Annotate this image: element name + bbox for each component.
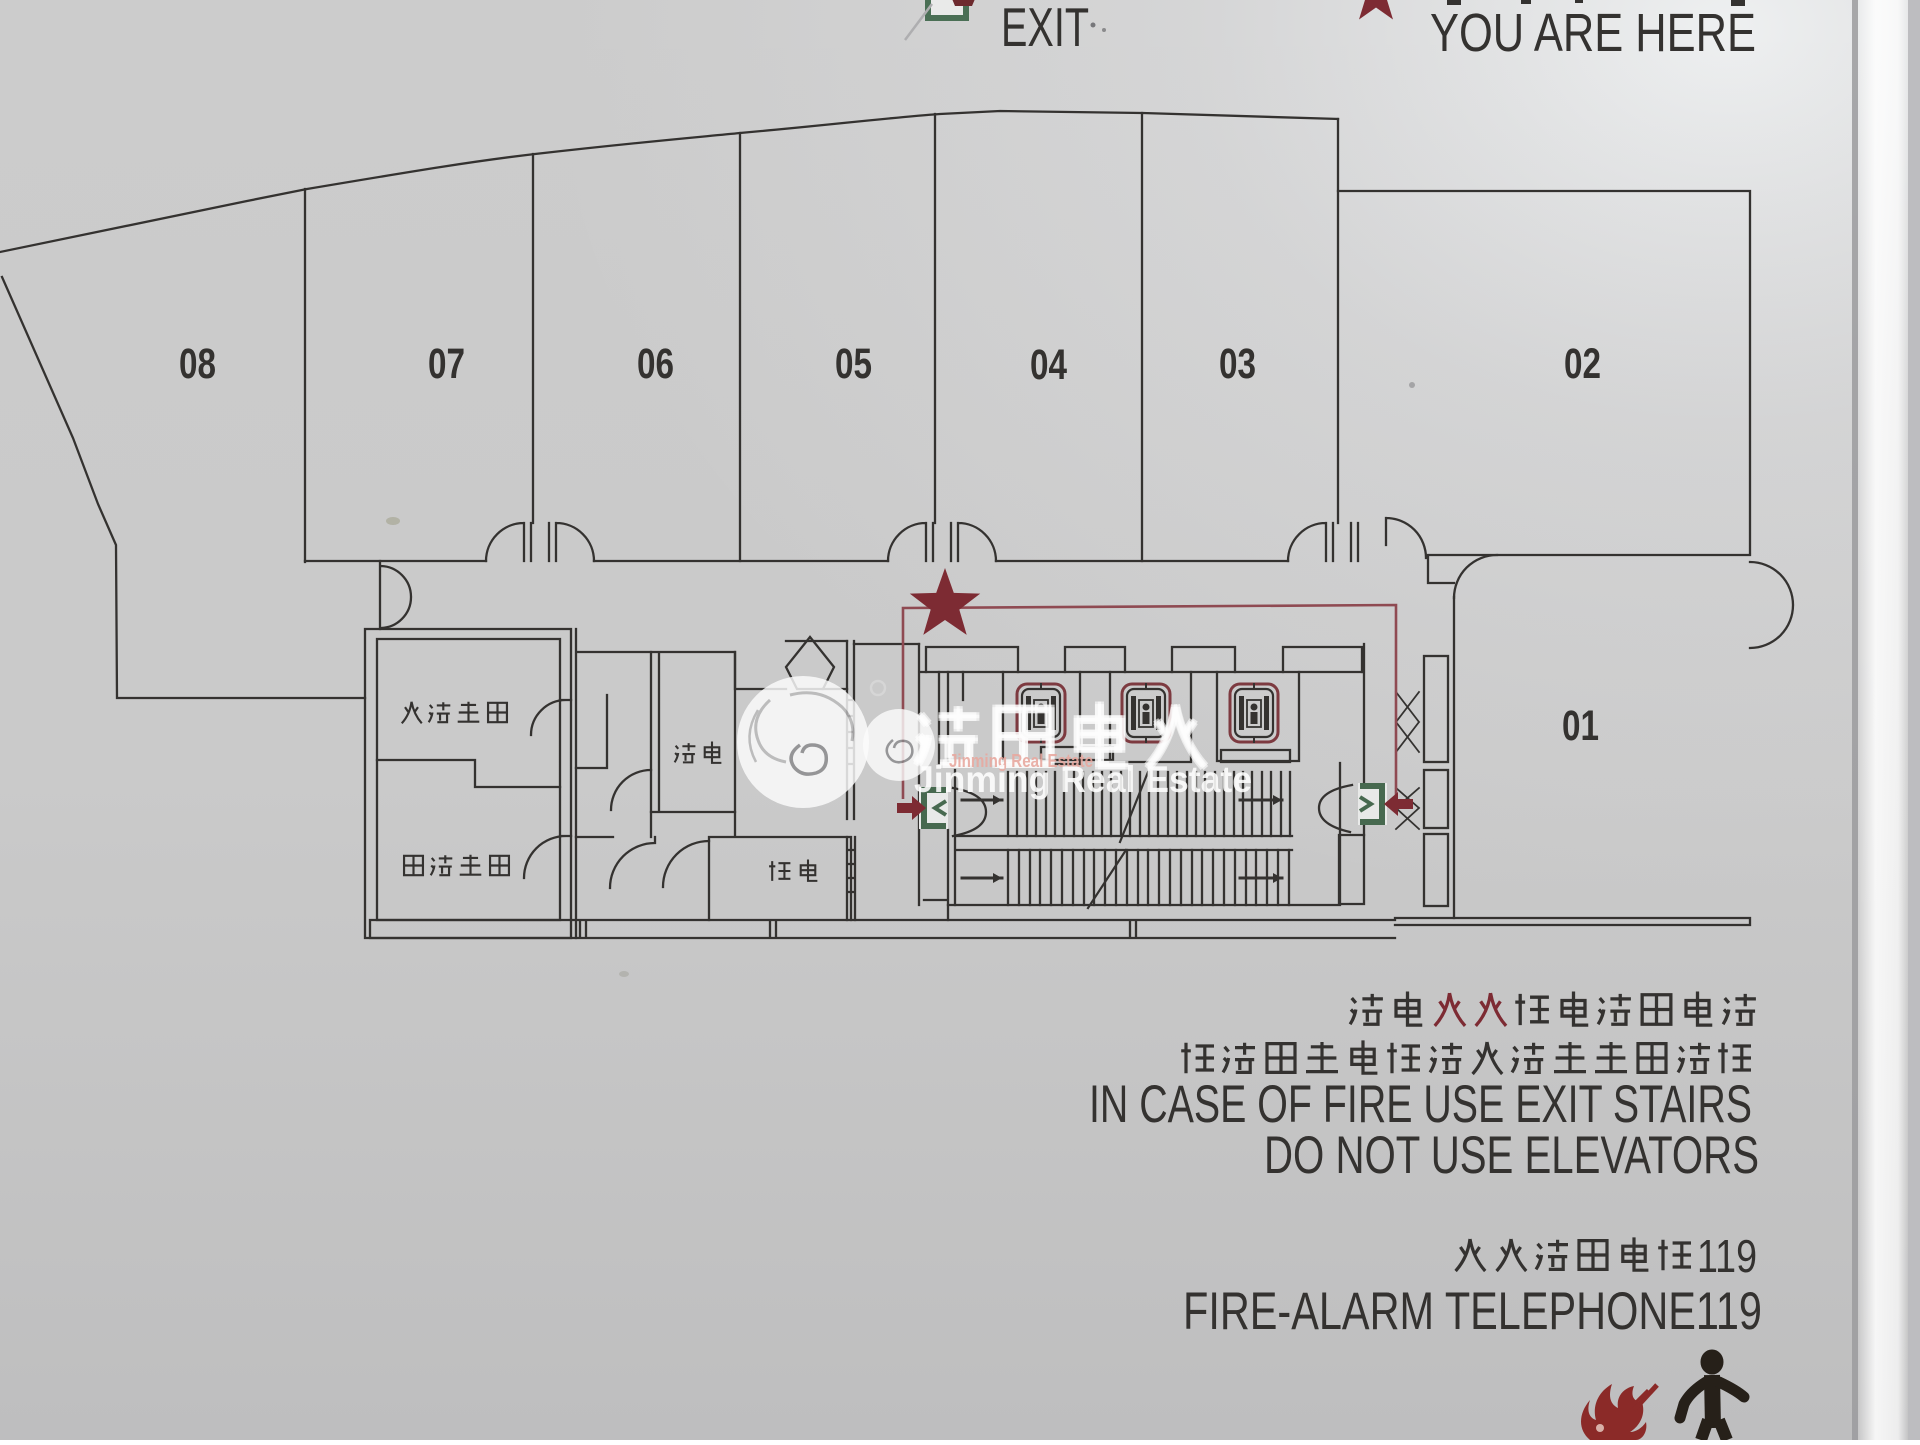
- svg-text:119: 119: [1697, 1230, 1757, 1282]
- svg-text:EXIT: EXIT: [1001, 0, 1089, 58]
- svg-text:YOU ARE HERE: YOU ARE HERE: [1430, 3, 1756, 63]
- svg-text:Jinming Real Estate: Jinming Real Estate: [914, 759, 1252, 800]
- svg-text:04: 04: [1030, 341, 1067, 389]
- svg-text:05: 05: [835, 340, 872, 388]
- svg-text:02: 02: [1564, 340, 1601, 388]
- svg-text:DO NOT USE ELEVATORS: DO NOT USE ELEVATORS: [1264, 1126, 1759, 1185]
- svg-text:01: 01: [1562, 702, 1599, 750]
- svg-text:07: 07: [428, 340, 465, 388]
- svg-text:FIRE-ALARM TELEPHONE119: FIRE-ALARM TELEPHONE119: [1183, 1282, 1762, 1341]
- svg-text:06: 06: [637, 340, 674, 388]
- svg-text:03: 03: [1219, 340, 1256, 388]
- svg-text:08: 08: [179, 340, 216, 388]
